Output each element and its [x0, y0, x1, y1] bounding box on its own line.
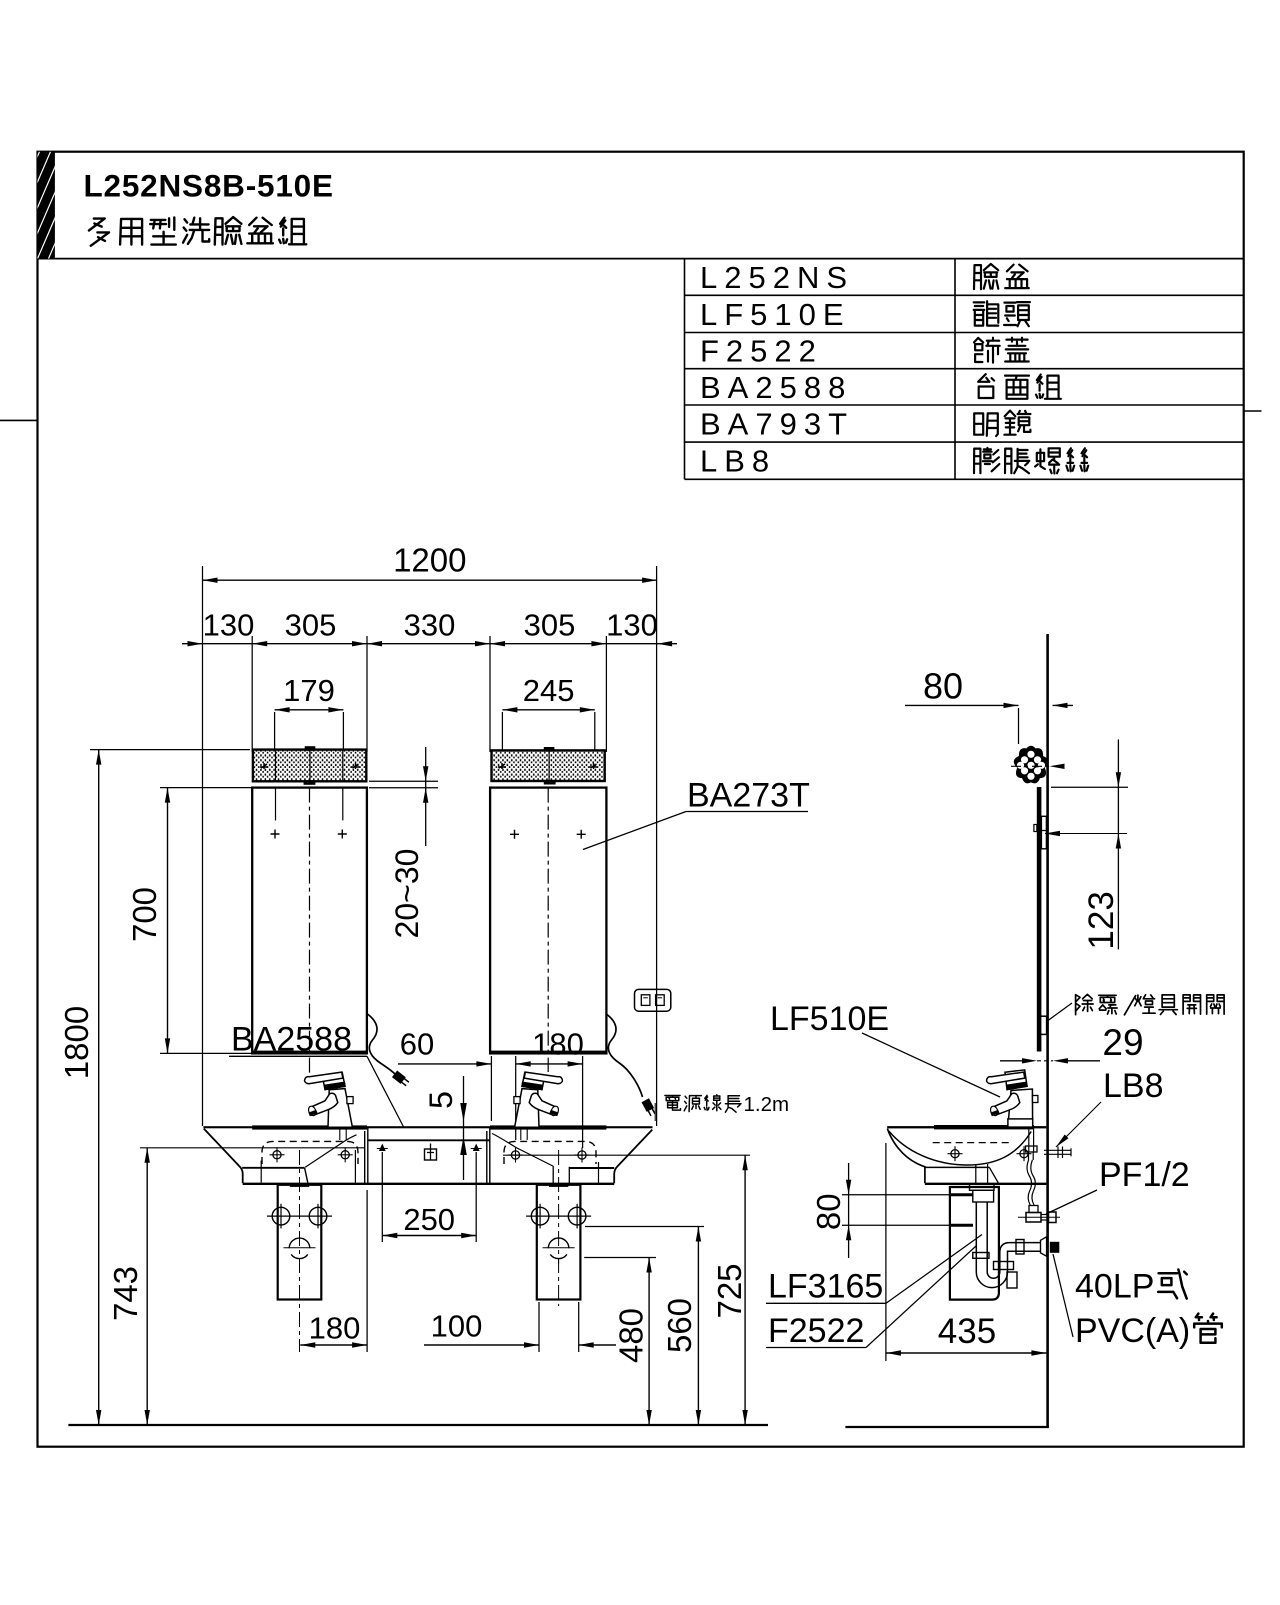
- svg-text:330: 330: [404, 608, 456, 643]
- svg-text:BA2588: BA2588: [700, 370, 852, 405]
- svg-text:725: 725: [711, 1263, 748, 1318]
- svg-text:80: 80: [923, 666, 963, 707]
- svg-text:480: 480: [613, 1308, 650, 1363]
- svg-text:F2522: F2522: [700, 334, 823, 369]
- svg-text:560: 560: [661, 1298, 698, 1353]
- svg-text:LF510E: LF510E: [700, 297, 851, 332]
- svg-text:PVC(A): PVC(A): [1075, 1312, 1190, 1350]
- svg-text:1800: 1800: [58, 1006, 95, 1079]
- svg-text:PF1/2: PF1/2: [1099, 1156, 1190, 1194]
- svg-text:5: 5: [423, 1091, 459, 1109]
- svg-text:LB8: LB8: [1103, 1067, 1164, 1105]
- svg-text:180: 180: [532, 1027, 584, 1062]
- svg-text:L252NS: L252NS: [700, 260, 854, 295]
- svg-text:40LP: 40LP: [1075, 1268, 1154, 1306]
- svg-text:BA273T: BA273T: [687, 777, 810, 815]
- svg-text:123: 123: [1082, 891, 1121, 949]
- svg-text:305: 305: [285, 608, 337, 643]
- svg-text:LB8: LB8: [700, 444, 776, 479]
- svg-text:60: 60: [400, 1027, 434, 1062]
- svg-text:F2522: F2522: [768, 1312, 864, 1350]
- svg-text:250: 250: [403, 1202, 455, 1237]
- svg-text:L252NS8B-510E: L252NS8B-510E: [84, 168, 334, 204]
- svg-text:20~30: 20~30: [389, 849, 425, 939]
- svg-text:BA793T: BA793T: [700, 407, 854, 442]
- svg-text:100: 100: [431, 1309, 483, 1344]
- svg-text:130: 130: [606, 608, 658, 643]
- svg-text:LF510E: LF510E: [770, 1000, 889, 1038]
- svg-text:180: 180: [309, 1311, 361, 1346]
- svg-text:179: 179: [283, 673, 335, 708]
- svg-text:305: 305: [524, 608, 576, 643]
- svg-text:435: 435: [938, 1312, 996, 1351]
- svg-text:LF3165: LF3165: [768, 1268, 883, 1306]
- svg-text:245: 245: [523, 673, 575, 708]
- svg-text:29: 29: [1102, 1022, 1143, 1063]
- svg-text:BA2588: BA2588: [231, 1021, 352, 1059]
- svg-text:1.2m: 1.2m: [744, 1093, 790, 1116]
- svg-text:80: 80: [810, 1193, 847, 1230]
- svg-text:130: 130: [203, 608, 255, 643]
- svg-text:1200: 1200: [393, 542, 466, 579]
- svg-text:700: 700: [126, 887, 163, 942]
- svg-text:743: 743: [107, 1266, 144, 1321]
